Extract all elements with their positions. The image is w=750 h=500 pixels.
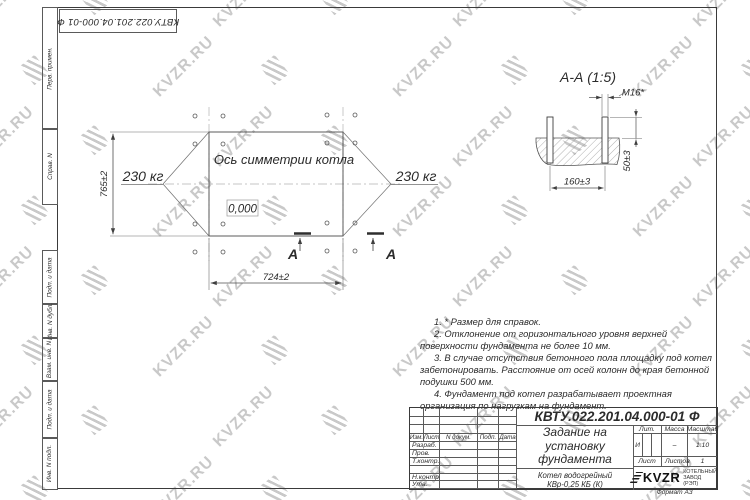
revision-cell: [410, 417, 424, 426]
bolt-hole-circle: [353, 249, 357, 253]
anchor-bolt-right: [602, 117, 608, 163]
revision-cell: [440, 425, 478, 434]
sig-cell: [499, 442, 517, 450]
sig-cell: [440, 466, 478, 474]
protrusion-dim-ext: [610, 118, 642, 139]
scale-value: 1:10: [688, 434, 717, 457]
rotated-docnumber-text: КВТУ.022.201.04.000-01 Ф: [57, 16, 179, 27]
bolt-hole-circle: [193, 142, 197, 146]
strip-label: Инв. N дубл.: [47, 303, 54, 340]
sig-cell: [440, 481, 478, 489]
bolt-hole-circle: [353, 113, 357, 117]
strip-label: Перв. примен.: [47, 47, 54, 89]
lit-header: Лит.: [633, 425, 662, 434]
foundation-plan: 230 кг 230 кг Ось симметрии котла 0,000 …: [99, 107, 438, 290]
row-label-blank: [410, 466, 440, 474]
strip-cell-podp-data-1: Подп. и дата: [42, 250, 58, 305]
sig-cell: [478, 466, 499, 474]
row-label-razrab: Разраб.: [410, 442, 440, 450]
bolt-size-label: M16*: [622, 88, 644, 99]
bolt-hole-circle: [221, 114, 225, 118]
col-header-ndoc: N докум.: [440, 434, 478, 443]
company-name-line: ЗАВОД (РЭП): [683, 475, 701, 487]
drawing-title: Задание на установку фундамента: [517, 425, 634, 468]
bolt-hole-circle: [193, 250, 197, 254]
strip-cell-perv-primen: Перв. примен.: [42, 7, 58, 130]
sig-cell: [478, 458, 499, 466]
row-label-nkontr: Н.контр.: [410, 474, 440, 482]
spacing-dim-text: 160±3: [564, 177, 591, 188]
strip-cell-sprav-n: Справ. N: [42, 128, 58, 205]
revision-cell: [410, 408, 424, 417]
col-header-data: Дата: [499, 434, 517, 443]
note-item: 2. Отклонение от горизонтального уровня …: [420, 328, 714, 352]
revision-cell: [424, 417, 440, 426]
elevation-label: 0,000: [228, 204, 257, 216]
sig-cell: [499, 458, 517, 466]
sig-cell: [440, 442, 478, 450]
load-left-label: 230 кг: [122, 168, 164, 184]
sig-cell: [478, 450, 499, 458]
section-detail: А-А (1:5) M16* 50±3: [536, 69, 644, 191]
drawing-sheet: KVZR.RUKVZR.RUKVZR.RUKVZR.RUKVZR.RUKVZR.…: [0, 0, 750, 500]
symmetry-axis-label: Ось симметрии котла: [214, 152, 354, 167]
sig-cell: [478, 474, 499, 482]
revision-cell: [424, 425, 440, 434]
col-header-podp: Подп.: [478, 434, 499, 443]
bolt-hole-circle: [325, 221, 329, 225]
revision-cell: [478, 425, 499, 434]
mass-header: Масса: [662, 425, 688, 434]
product-name-line: Котел водогрейный: [538, 471, 612, 480]
sig-cell: [499, 481, 517, 489]
anchor-bolt-left: [547, 117, 553, 163]
bolt-hole-circle: [193, 114, 197, 118]
titleblock-right-section: Лит. Масса Масштаб И – 1:10 Лист Листов …: [633, 425, 717, 489]
revision-cell: [499, 425, 517, 434]
row-label-tkontr: Т.контр.: [410, 458, 440, 466]
strip-label: Взам. инв. N: [47, 341, 54, 378]
bolt-hole-circle: [325, 113, 329, 117]
drawing-title-line: фундамента: [538, 453, 612, 467]
row-label-prov: Пров.: [410, 450, 440, 458]
drawing-title-line: Задание на: [543, 426, 607, 440]
col-header-list: Лист: [424, 434, 440, 443]
bolt-hole-circle: [221, 142, 225, 146]
kvzr-logo-text: KVZR: [643, 470, 680, 485]
bolt-hole-circle: [221, 250, 225, 254]
sig-cell: [440, 450, 478, 458]
sig-cell: [440, 474, 478, 482]
strip-cell-vzam-inv: Взам. инв. N: [42, 337, 58, 382]
revision-cell: [440, 417, 478, 426]
row-label-utv: Утв.: [410, 481, 440, 489]
product-name: Котел водогрейный КВр-0,25 КБ (К): [517, 468, 634, 490]
sheets-label: Листов: [662, 457, 688, 467]
technical-notes: 1. * Размер для справок. 2. Отклонение о…: [420, 316, 714, 412]
note-item: 3. В случае отсутствия бетонного пола пл…: [420, 352, 714, 388]
revision-cell: [424, 408, 440, 417]
strip-label: Подп. и дата: [47, 389, 54, 429]
lit-cell-2: [643, 434, 652, 457]
strip-label: Справ. N: [47, 153, 54, 180]
bolt-hole-circle: [325, 249, 329, 253]
bolt-hole-group: [193, 113, 357, 254]
revision-cell: [478, 417, 499, 426]
company-logo-cell: KVZR КОТЕЛЬНЫЙ ЗАВОД (РЭП): [633, 467, 717, 488]
bolt-hole-circle: [193, 222, 197, 226]
company-name: КОТЕЛЬНЫЙ ЗАВОД (РЭП): [683, 469, 717, 487]
revision-cell: [499, 417, 517, 426]
col-header-izm: Изм.: [410, 434, 424, 443]
product-name-line: КВр-0,25 КБ (К): [547, 480, 603, 489]
note-item: 1. * Размер для справок.: [420, 316, 714, 328]
sig-cell: [478, 442, 499, 450]
sig-cell: [499, 450, 517, 458]
sig-cell: [440, 458, 478, 466]
strip-cell-podp-data-2: Подп. и дата: [42, 380, 58, 439]
bolt-hole-circle: [221, 222, 225, 226]
section-detail-title: А-А (1:5): [559, 69, 616, 85]
protrusion-dim-text: 50±3: [622, 150, 633, 172]
revision-cell: [440, 408, 478, 417]
strip-label: Инв. N подл.: [47, 445, 54, 482]
load-right-label: 230 кг: [395, 168, 437, 184]
sig-cell: [499, 474, 517, 482]
revision-cell: [499, 408, 517, 417]
section-letter-left: А: [287, 246, 298, 262]
titleblock-doc-number: КВТУ.022.201.04.000-01 Ф: [517, 408, 717, 426]
dim-height-text: 765±2: [99, 170, 110, 197]
revision-cell: [478, 408, 499, 417]
title-block: Изм. Лист N докум. Подп. Дата Разраб. Пр…: [409, 407, 718, 490]
mass-value: –: [662, 434, 688, 457]
drawing-title-line: установку: [545, 440, 605, 454]
revision-cell: [410, 425, 424, 434]
strip-cell-inv-dubl: Инв. N дубл.: [42, 303, 58, 339]
bolt-hole-circle: [325, 141, 329, 145]
strip-cell-inv-podl: Инв. N подл.: [42, 437, 58, 490]
sig-cell: [499, 466, 517, 474]
sig-cell: [478, 481, 499, 489]
lit-cell-3: [652, 434, 662, 457]
format-label: Формат А3: [633, 489, 716, 496]
scale-header: Масштаб: [688, 425, 717, 434]
rotated-docnumber-box: КВТУ.022.201.04.000-01 Ф: [59, 9, 177, 33]
strip-label: Подп. и дата: [47, 257, 54, 297]
sheet-label: Лист: [633, 457, 662, 467]
title-block-signature-table: Изм. Лист N докум. Подп. Дата Разраб. Пр…: [410, 408, 517, 489]
sheets-value: 1: [688, 457, 717, 467]
lit-value: И: [633, 434, 643, 457]
section-letter-right: А: [385, 246, 396, 262]
dim-width-text: 724±2: [263, 272, 290, 283]
